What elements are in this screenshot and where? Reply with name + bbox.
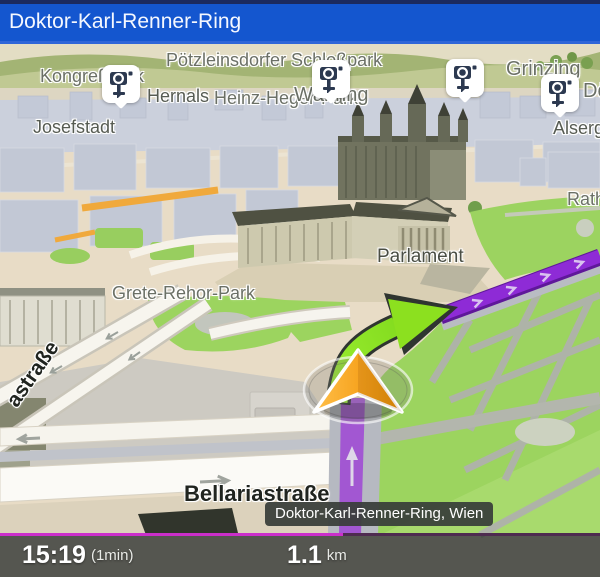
- map-label-alsergrund: Alsergr: [553, 118, 600, 139]
- speed-camera-icon: [318, 64, 344, 94]
- map-label-rathauspark: Rath: [567, 189, 600, 210]
- speed-camera-icon: [547, 78, 573, 108]
- arrival-time: 15:19: [22, 541, 86, 570]
- current-street-name: Doktor-Karl-Renner-Ring: [0, 4, 600, 40]
- speed-camera-pin[interactable]: [102, 65, 140, 103]
- location-tooltip: Doktor-Karl-Renner-Ring, Wien: [265, 502, 493, 526]
- map-label-josefstadt: Josefstadt: [33, 117, 115, 138]
- speed-camera-pin[interactable]: [446, 59, 484, 97]
- speed-camera-icon: [452, 63, 478, 93]
- speed-camera-pin[interactable]: [312, 60, 350, 98]
- map-label-parlament: Parlament: [377, 246, 464, 268]
- speed-camera-pin[interactable]: [541, 74, 579, 112]
- map-label-hernals: Hernals: [147, 86, 209, 107]
- map-label-grete-rehor-park: Grete-Rehor-Park: [112, 283, 255, 304]
- distance-group: 1.1 km: [287, 533, 347, 577]
- speed-camera-icon: [108, 69, 134, 99]
- navigation-app: Kongreßpark Hernals Pötzleinsdorfer Schl…: [0, 0, 600, 577]
- remaining-duration: (1min): [91, 547, 134, 564]
- remaining-distance-value: 1.1: [287, 541, 322, 570]
- remaining-distance-unit: km: [327, 547, 347, 564]
- current-street-bar[interactable]: Doktor-Karl-Renner-Ring: [0, 0, 600, 44]
- route-info-bar[interactable]: 15:19 (1min) 1.1 km: [0, 533, 600, 577]
- map-label-doebling: Dö: [583, 80, 600, 103]
- eta-group: 15:19 (1min): [22, 533, 133, 577]
